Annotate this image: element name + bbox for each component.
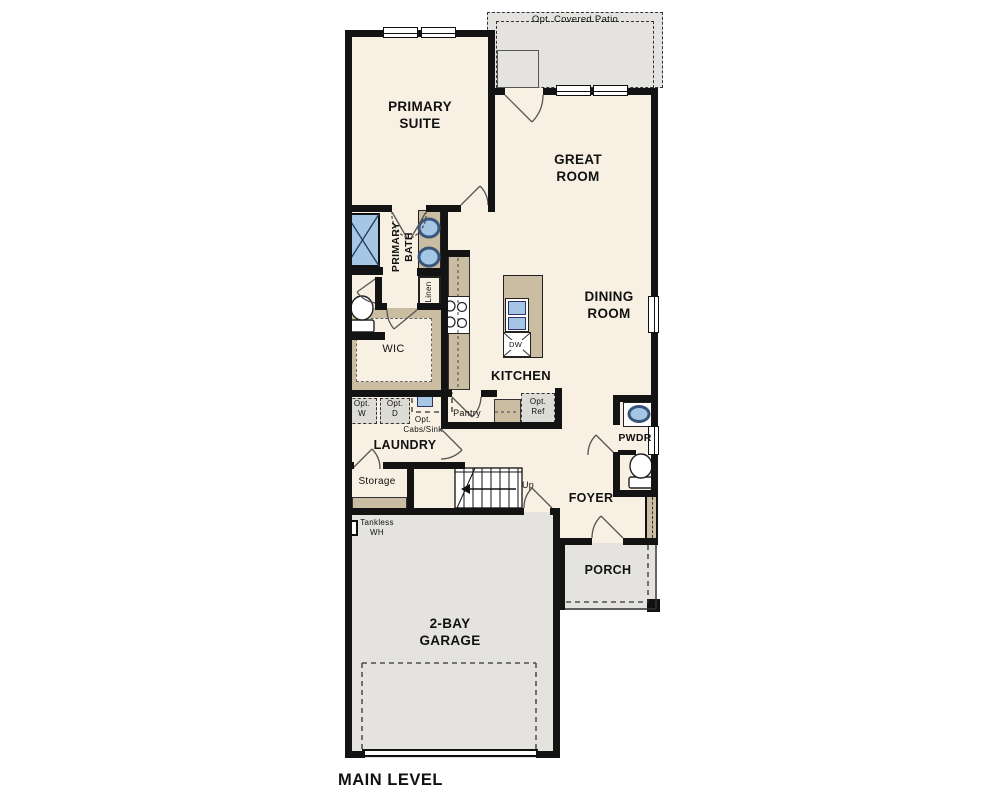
wall [345,462,354,469]
wall [441,250,470,257]
wall [623,538,658,545]
entry-closet-strip [645,497,658,538]
label-stairs-up: Up [518,480,538,491]
wall [345,205,392,212]
wall [383,462,465,469]
wall [481,390,497,397]
label-linen: Linen [415,267,443,317]
range-burners [445,301,467,328]
label-dishwasher: DW [508,340,523,350]
floor-plan: PRIMARY SUITE GREAT ROOM DINING ROOM KIT… [0,0,1000,800]
label-wic: WIC [346,343,441,357]
label-pantry: Pantry [449,408,485,419]
window [593,85,628,96]
counter-centerlines [458,258,519,412]
entry-closet-dash [652,497,653,538]
plan-graphics [0,0,1000,800]
label-laundry: LAUNDRY [346,438,464,454]
label-kitchen: KITCHEN [491,368,561,385]
label-garage: 2-BAY GARAGE [400,615,500,649]
label-pwdr: PWDR [612,432,658,445]
label-primary-suite: PRIMARY SUITE [345,98,495,132]
wall [613,395,620,425]
wall [375,303,387,310]
wall [345,30,495,37]
label-porch: PORCH [566,563,650,579]
wall [345,332,385,340]
stairs [455,468,522,508]
wall [536,751,560,758]
label-opt-washer: Opt. W [347,399,377,419]
wall [558,538,565,610]
label-tankless-wh: Tankless WH [355,518,399,538]
label-opt-covered-patio: Opt. Covered Patio [487,14,663,26]
wall [618,450,636,455]
window [383,27,418,38]
window [421,27,456,38]
label-storage: Storage [345,476,409,489]
label-great-room: GREAT ROOM [528,151,628,185]
wall [345,508,524,515]
wall [488,88,505,95]
wall [441,422,562,429]
label-opt-ref: Opt. Ref [523,397,553,417]
label-opt-cabs-sink: Opt. Cabs/Sink [394,415,452,435]
wall [375,277,382,305]
wall [345,390,452,397]
label-main-level: MAIN LEVEL [338,770,538,791]
label-foyer: FOYER [560,491,622,507]
wall [345,751,365,758]
window [556,85,591,96]
label-dining-room: DINING ROOM [559,288,659,322]
